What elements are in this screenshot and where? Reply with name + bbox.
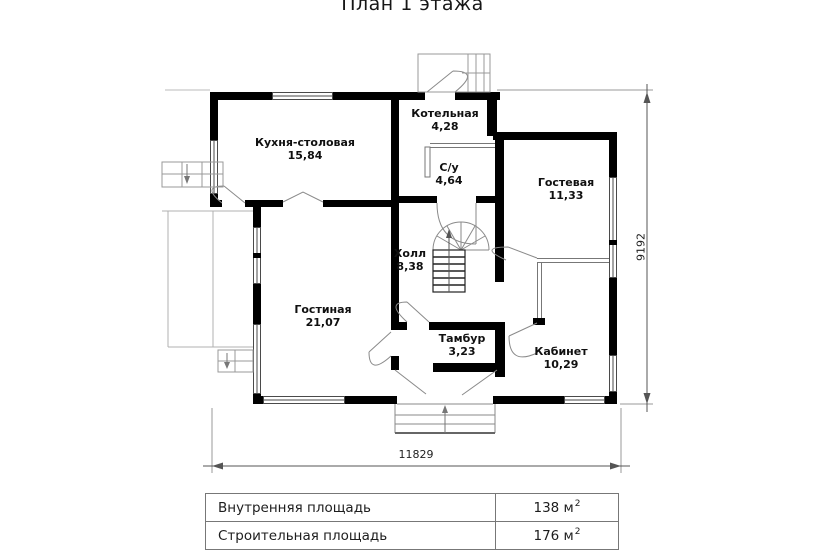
room-name: Гостевая [538,176,594,189]
room-area: 21,07 [294,316,351,329]
table-row: Внутренняя площадь 138 м2 [206,494,618,521]
area-row-value: 176 м2 [495,522,618,549]
table-row: Строительная площадь 176 м2 [206,521,618,549]
rear-porch [418,54,490,92]
room-label-office: Кабинет 10,29 [534,345,587,371]
room-name: С/у [435,161,462,174]
area-value-sup: 2 [575,527,581,537]
room-name: Котельная [411,107,478,120]
area-row-value: 138 м2 [495,494,618,521]
room-name: Холл [394,247,426,260]
steps-bottom-left [218,350,253,372]
room-label-vestibule: Тамбур 3,23 [439,332,486,358]
area-row-label: Внутренняя площадь [206,494,495,521]
terrace [162,211,253,347]
area-value-text: 138 м [534,500,574,516]
room-label-bathroom: С/у 4,64 [435,161,462,187]
room-label-boiler: Котельная 4,28 [411,107,478,133]
room-label-hall: Холл 8,38 [394,247,426,273]
dimension-bottom: 11829 [399,448,434,461]
area-value-sup: 2 [575,499,581,509]
room-area: 4,28 [411,120,478,133]
room-label-guest: Гостевая 11,33 [538,176,594,202]
dimension-right: 9192 [635,233,648,261]
room-area: 8,38 [394,260,426,273]
area-summary-table: Внутренняя площадь 138 м2 Строительная п… [205,493,619,550]
room-area: 10,29 [534,358,587,371]
floor-plan-drawing [0,0,825,550]
room-area: 4,64 [435,174,462,187]
entrance-steps [395,404,495,433]
room-name: Гостиная [294,303,351,316]
floor-plan-page: План 1 этажа [0,0,825,550]
room-area: 15,84 [255,149,355,162]
staircase [433,222,489,292]
room-name: Тамбур [439,332,486,345]
room-label-kitchen-dining: Кухня-столовая 15,84 [255,136,355,162]
room-area: 3,23 [439,345,486,358]
area-value-text: 176 м [534,528,574,544]
room-area: 11,33 [538,189,594,202]
area-row-label: Строительная площадь [206,522,495,549]
room-label-living: Гостиная 21,07 [294,303,351,329]
room-name: Кухня-столовая [255,136,355,149]
room-name: Кабинет [534,345,587,358]
